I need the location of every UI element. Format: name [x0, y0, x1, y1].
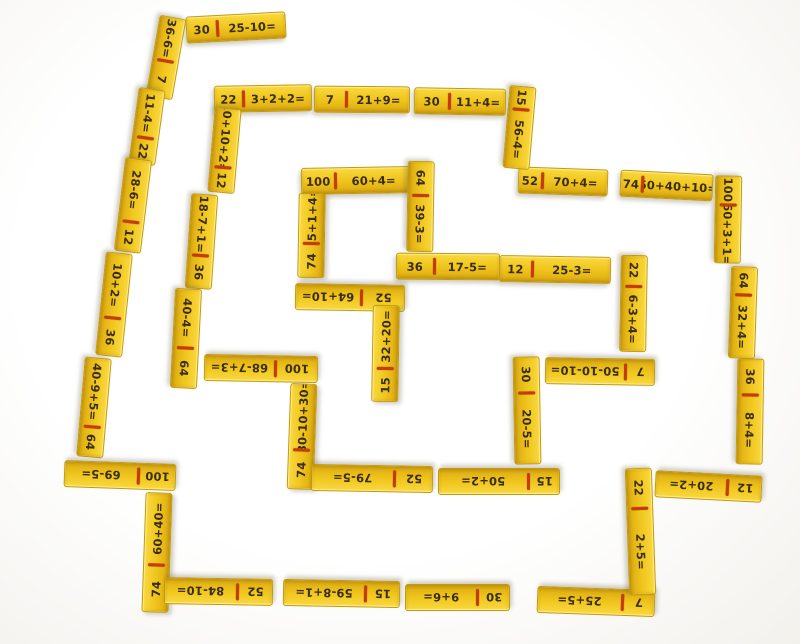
tile-half-label: 22: [631, 479, 646, 496]
tile-half-label: 30: [423, 93, 440, 107]
tile-half-expression: 64: [171, 348, 198, 387]
tile-half-number: 64: [731, 267, 757, 294]
tile-half-label: 22: [135, 142, 151, 160]
tile-half-label: 64+10=: [302, 289, 355, 304]
tile-half-label: 18-7+1=: [193, 195, 211, 253]
tile-half-expression: 25+5=: [538, 586, 622, 614]
domino-tile: 18-7+1=36: [184, 193, 218, 290]
domino-tile: 721+9=: [314, 85, 410, 113]
tile-half-expression: 12: [115, 221, 143, 252]
tile-half-expression: 32+20=: [372, 305, 398, 366]
tile-half-label: 3+2+2=: [251, 90, 305, 105]
tile-half-label: 7: [636, 365, 644, 379]
tile-half-expression: 79-5=: [312, 464, 393, 490]
tile-half-label: 50+2=: [461, 474, 505, 488]
tile-half-label: 50+40+10=: [643, 177, 712, 195]
domino-tile: 3011+4=: [414, 87, 506, 116]
domino-tile: 3020-5=: [513, 356, 542, 464]
tile-half-number: 100: [139, 463, 175, 489]
tile-half-expression: 60+40=: [144, 493, 171, 564]
tile-half-expression: 64+10=: [296, 284, 360, 310]
tile-half-expression: 20+2=: [655, 471, 727, 500]
tile-half-number: 15: [508, 86, 535, 109]
domino-tile: 6439-3=: [406, 160, 435, 251]
tile-half-expression: 95+1+4=: [298, 193, 324, 242]
tile-divider-line: [137, 467, 141, 484]
tile-half-number: 22: [621, 255, 646, 284]
tile-half-number: 74: [620, 170, 641, 196]
domino-tile: 3025-10=: [185, 11, 286, 43]
tile-half-label: 22: [626, 261, 640, 278]
tile-half-label: 8+4=: [742, 411, 757, 447]
tile-half-number: 30: [514, 357, 540, 391]
tile-half-number: 12: [728, 475, 761, 502]
tile-half-label: 9+6=: [423, 590, 459, 604]
tile-half-expression: 2+5=: [627, 509, 655, 594]
tile-half-expression: 12: [208, 168, 235, 193]
tile-half-label: 25-10=: [228, 18, 276, 34]
domino-tile: 226-3+4=: [619, 254, 648, 351]
tile-half-label: 11-4=: [139, 92, 158, 133]
tile-half-label: 56-4=: [509, 119, 526, 159]
tile-half-label: 64: [737, 272, 752, 289]
tile-half-label: 7: [155, 74, 170, 85]
tile-half-number: 28-6=: [119, 158, 151, 221]
tile-half-expression: 60+4=: [337, 167, 410, 193]
domino-tile: 5284-10=: [163, 577, 272, 606]
domino-tile: 40-4=64: [170, 287, 202, 388]
domino-tile: 6432+4=: [728, 266, 758, 359]
domino-tile: 10+2=36: [95, 251, 133, 357]
tile-half-expression: 50+2=: [439, 469, 527, 494]
tile-half-expression: 8+4=: [737, 396, 763, 463]
tile-half-label: 100: [306, 173, 331, 187]
tile-half-label: 25+5=: [557, 593, 602, 609]
tile-half-label: 74: [303, 252, 317, 269]
tile-half-label: 36: [743, 368, 757, 385]
tile-half-expression: 50-10-10=: [546, 358, 624, 384]
domino-tile: 10068-7+3=: [204, 354, 318, 383]
tile-half-label: 95+1+4=: [304, 193, 319, 242]
tile-half-label: 74: [294, 461, 309, 478]
tile-half-number: 15: [372, 369, 398, 401]
tile-half-label: 12: [121, 228, 137, 246]
tile-half-label: 59-8+1=: [295, 585, 353, 600]
tile-half-label: 100: [145, 469, 170, 484]
tile-half-label: 36: [407, 259, 424, 273]
tile-half-label: 15: [374, 587, 391, 601]
domino-tile: 222+5=: [624, 467, 655, 595]
domino-tile: 368+4=: [736, 358, 765, 464]
tile-half-label: 17-5=: [448, 259, 488, 273]
tile-half-number: 10+10+2=: [210, 108, 240, 167]
tile-half-number: 36: [397, 253, 433, 278]
domino-tile: 1532+20=: [371, 304, 400, 401]
tile-half-number: 36: [738, 359, 764, 394]
domino-tile: 28-6=12: [114, 157, 152, 254]
tile-half-label: 52: [406, 472, 423, 486]
tile-half-expression: 59-8+1=: [283, 579, 363, 605]
tile-half-label: 10+2=: [107, 262, 126, 308]
tile-half-label: 2+5=: [633, 533, 648, 570]
tile-half-label: 52: [247, 585, 264, 599]
tile-half-number: 64: [408, 161, 434, 193]
tile-half-label: 12: [507, 261, 524, 275]
tile-half-label: 36-6=: [159, 17, 180, 58]
tile-half-expression: 70+4=: [544, 168, 608, 195]
tile-half-label: 60+40=: [150, 502, 166, 555]
domino-tile: 36-6=7: [146, 14, 187, 99]
domino-tile: 10069-5=: [64, 460, 177, 491]
domino-tile: 1556-4=: [502, 84, 536, 169]
tile-half-number: 7: [627, 359, 654, 384]
tile-half-number: 40-9+5=: [80, 357, 111, 426]
tile-half-label: 15: [514, 88, 529, 106]
domino-tile: 40-9+5=64: [76, 356, 112, 458]
tile-half-label: 70+4=: [553, 174, 598, 190]
tile-half-number: 100: [302, 168, 335, 194]
domino-tile: 10+10+2=12: [207, 106, 241, 193]
domino-tile: 1550+2=: [438, 468, 560, 495]
tile-half-label: 36: [191, 263, 206, 280]
tile-half-label: 74: [622, 176, 639, 191]
tile-half-label: 79-5=: [333, 470, 373, 485]
tile-half-label: 39-3=: [412, 204, 427, 244]
tile-half-number: 30: [186, 16, 217, 43]
tile-half-label: 11+4=: [456, 94, 501, 109]
tile-divider-line: [274, 360, 277, 377]
tile-half-label: 68-7+3=: [211, 360, 269, 375]
tile-half-label: 28-6=: [126, 169, 145, 210]
tile-half-expression: 32+4=: [729, 296, 756, 358]
tile-half-label: 32+4=: [735, 304, 751, 349]
tile-half-label: 100: [721, 177, 735, 202]
tile-divider-line: [621, 593, 625, 610]
tile-half-expression: 64: [77, 426, 104, 456]
domino-tile: 10060+3+1=: [714, 175, 743, 263]
domino-tile: 1225-3=: [499, 255, 611, 284]
tile-half-number: 10+2=: [100, 252, 131, 318]
tile-half-label: 10+10+2=: [215, 108, 235, 167]
tile-half-number: 100: [276, 356, 317, 382]
tile-half-number: 22: [625, 468, 651, 506]
tile-half-label: 50-10-10=: [550, 363, 619, 378]
tile-half-label: 12: [736, 481, 753, 496]
tile-half-number: 52: [238, 579, 272, 605]
tile-half-expression: 25-3=: [534, 256, 611, 282]
tile-half-label: 64: [83, 433, 98, 451]
tile-half-number: 74: [298, 245, 324, 277]
tile-half-label: 84-10=: [176, 583, 224, 598]
tile-half-label: 30: [193, 21, 210, 36]
tile-half-number: 18-7+1=: [188, 194, 217, 254]
tile-half-expression: 69-5=: [65, 461, 138, 488]
tile-half-expression: 84-10=: [164, 578, 235, 604]
tile-half-label: 30: [485, 590, 501, 604]
tile-half-label: 100: [284, 361, 309, 375]
domino-tile: 7450+40+10=: [619, 169, 713, 201]
tile-half-number: 30: [415, 88, 449, 114]
tile-half-number: 52: [519, 167, 542, 193]
tile-half-number: 15: [530, 469, 559, 494]
tile-half-label: 6-3+4=: [625, 294, 640, 343]
tile-half-number: 52: [396, 466, 432, 492]
domino-tile: 5279-5=: [311, 463, 433, 492]
domino-tile: 7495+1+4=: [297, 192, 325, 277]
tile-half-label: 7: [635, 595, 644, 609]
tile-half-label: 7: [326, 92, 334, 106]
tile-half-expression: 68-7+3=: [205, 355, 274, 381]
tile-half-label: 36: [103, 328, 119, 346]
tile-half-label: 15: [536, 474, 552, 488]
tile-half-number: 100: [716, 176, 741, 203]
tile-half-expression: 11+4=: [451, 88, 505, 114]
tile-half-label: 64: [413, 169, 427, 186]
tile-half-label: 52: [375, 290, 392, 304]
domino-tile: 10060+4=: [301, 166, 411, 195]
tile-half-expression: 80-10+30=: [289, 384, 316, 448]
tile-half-label: 74: [148, 580, 163, 597]
tile-half-number: 7: [315, 86, 345, 111]
tile-half-label: 80-10+30=: [294, 384, 311, 448]
tile-half-number: 11-4=: [133, 88, 164, 138]
tile-half-label: 60+4=: [351, 172, 396, 187]
tile-divider-line: [527, 473, 530, 490]
tile-half-label: 25-3=: [552, 262, 592, 277]
tile-divider-line: [360, 289, 363, 306]
tile-half-label: 32+20=: [378, 309, 393, 362]
tile-half-label: 30: [519, 366, 533, 383]
tile-half-expression: 36: [96, 318, 125, 356]
tile-half-expression: 56-4=: [503, 110, 533, 169]
tile-half-expression: 21+9=: [348, 86, 409, 112]
tile-half-expression: 20-5=: [514, 394, 540, 464]
tile-half-number: 36-6=: [153, 15, 185, 60]
tile-half-number: 15: [366, 581, 399, 607]
domino-tile: 5270+4=: [518, 166, 609, 196]
tile-half-label: 22: [220, 91, 237, 105]
domino-tile: 309+6=: [405, 584, 510, 611]
tile-half-expression: 25-10=: [219, 12, 286, 40]
tile-half-expression: 60+3+1=: [715, 205, 741, 262]
domino-tile: 3617-5=: [396, 252, 500, 280]
tile-half-expression: 6-3+4=: [620, 287, 646, 351]
tile-half-label: 52: [522, 173, 539, 188]
tile-half-number: 12: [500, 256, 531, 282]
tile-half-number: 30: [479, 585, 509, 610]
tile-half-expression: 3+2+2=: [245, 85, 312, 111]
tile-half-number: 40-4=: [173, 288, 201, 346]
tile-half-label: 20-5=: [520, 409, 535, 449]
tile-half-label: 40-4=: [179, 297, 195, 337]
tile-half-label: 40-9+5=: [86, 362, 105, 420]
domino-tile: 11-4=22: [128, 86, 165, 165]
domino-maze-photo: 3025-10=36-6=711-4=2228-6=1210+2=3640-9+…: [0, 0, 800, 644]
tile-half-expression: 50+40+10=: [643, 171, 712, 200]
tile-half-label: 20+2=: [668, 477, 713, 493]
tile-divider-line: [393, 470, 396, 487]
tile-half-label: 64: [177, 359, 192, 376]
tile-half-label: 12: [214, 171, 229, 189]
tile-half-expression: 36: [185, 255, 212, 288]
tile-half-expression: 39-3=: [407, 196, 433, 250]
domino-tile: 1559-8+1=: [282, 578, 399, 607]
tile-divider-line: [624, 363, 627, 380]
domino-tile: 750-10-10=: [545, 357, 655, 386]
tile-half-label: 60+3+1=: [720, 205, 735, 262]
domino-tile: 1220+2=: [654, 470, 762, 503]
tile-half-label: 21+9=: [356, 92, 400, 106]
tile-half-expression: 17-5=: [436, 253, 500, 279]
tile-half-expression: 9+6=: [406, 585, 476, 610]
tile-half-label: 69-5=: [81, 467, 121, 482]
tile-half-label: 15: [377, 376, 391, 393]
